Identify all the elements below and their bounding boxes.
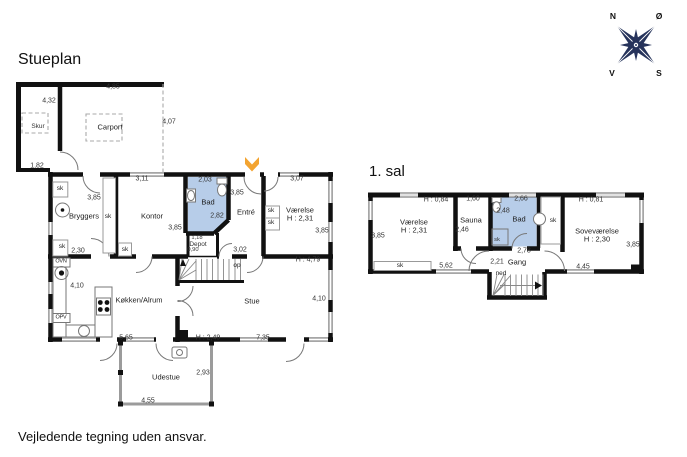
- outdoor-drain-icon: [172, 347, 187, 358]
- sink-icon: [534, 213, 546, 225]
- floorplan-drawing: [0, 0, 687, 457]
- compass-west-label: V: [609, 68, 615, 78]
- first-floor-plan: [368, 193, 644, 299]
- floorplan-page: Stueplan 1. sal Vejledende tegning uden …: [0, 0, 687, 457]
- disclaimer-text: Vejledende tegning uden ansvar.: [18, 429, 207, 444]
- ground-floor-plan: [16, 82, 333, 407]
- conservatory-walls: [118, 341, 214, 407]
- compass-south-label: S: [656, 68, 662, 78]
- ground-fixtures: [53, 178, 280, 358]
- staircase-up: [179, 259, 241, 280]
- stair-arrow: [535, 282, 542, 290]
- fireplace: [178, 330, 188, 340]
- dishwasher-box: [53, 314, 70, 323]
- ground-floor-title: Stueplan: [18, 51, 81, 69]
- toilet-icon: [217, 178, 227, 184]
- first-floor-title: 1. sal: [369, 163, 405, 180]
- stair-arrow: [180, 259, 186, 266]
- oven-box: [53, 258, 70, 267]
- compass-east-label: Ø: [656, 11, 663, 21]
- outbuilding-skur-carport: [16, 82, 164, 172]
- chimney: [631, 265, 642, 274]
- entrance-arrow-icon: [245, 157, 259, 172]
- kitchen-island: [95, 287, 112, 337]
- compass-north-label: N: [610, 11, 616, 21]
- staircase-down: [493, 275, 543, 297]
